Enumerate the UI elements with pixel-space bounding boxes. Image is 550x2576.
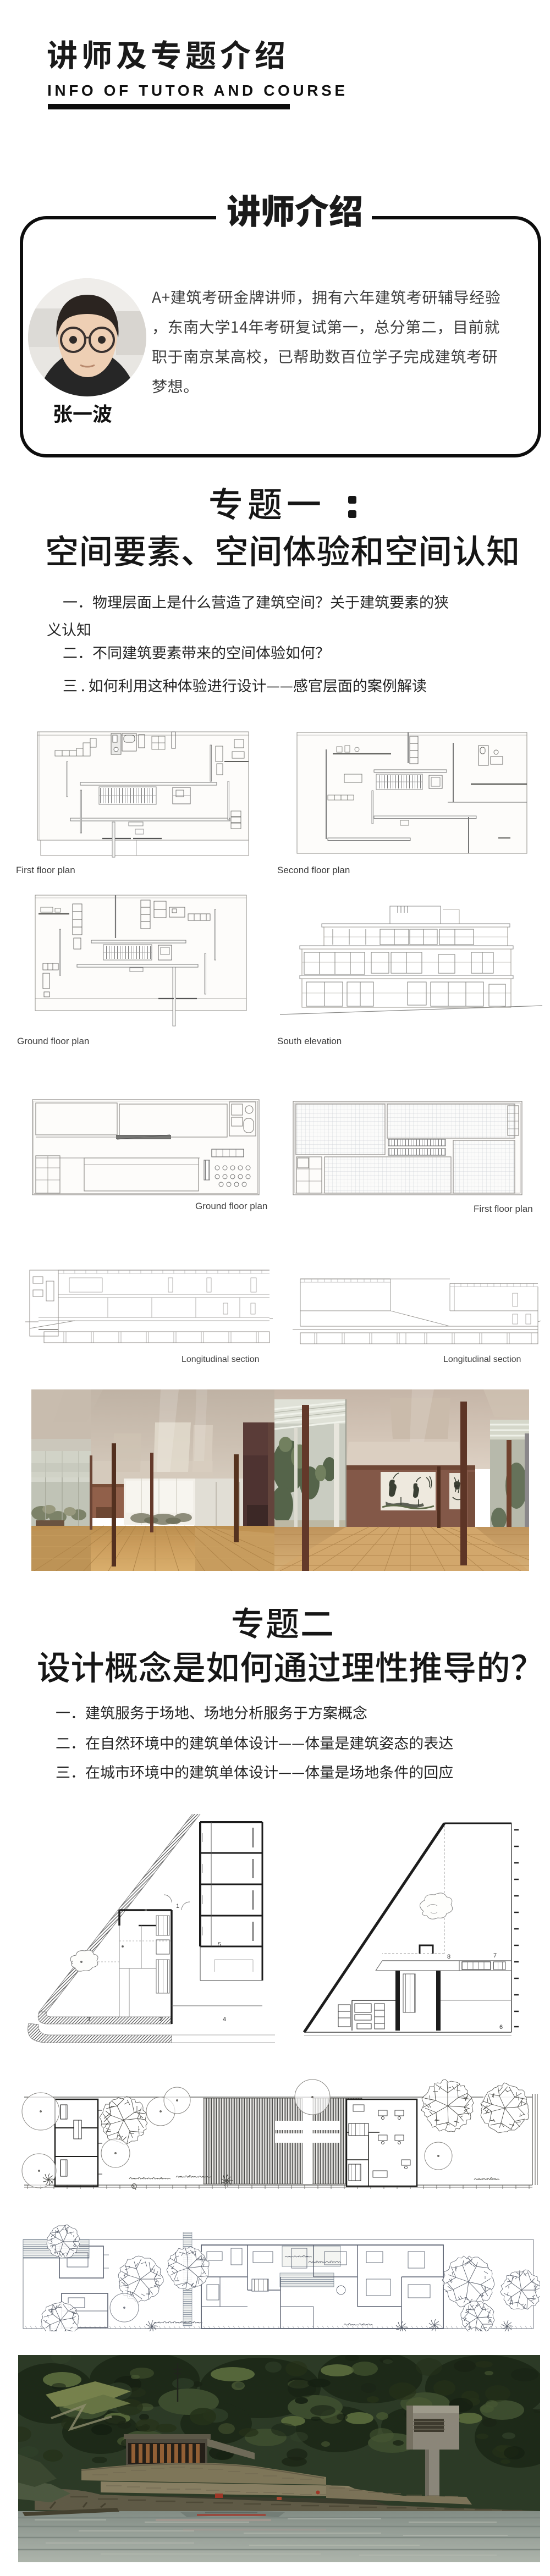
svg-text:5: 5 — [218, 1941, 221, 1948]
svg-text:1: 1 — [176, 1903, 179, 1910]
svg-text:4: 4 — [223, 2016, 226, 2023]
svg-text:3: 3 — [87, 2016, 90, 2023]
svg-text:8: 8 — [447, 1954, 450, 1960]
svg-text:7: 7 — [493, 1952, 497, 1959]
svg-text:2: 2 — [159, 2016, 163, 2023]
svg-text:6: 6 — [499, 2024, 503, 2031]
